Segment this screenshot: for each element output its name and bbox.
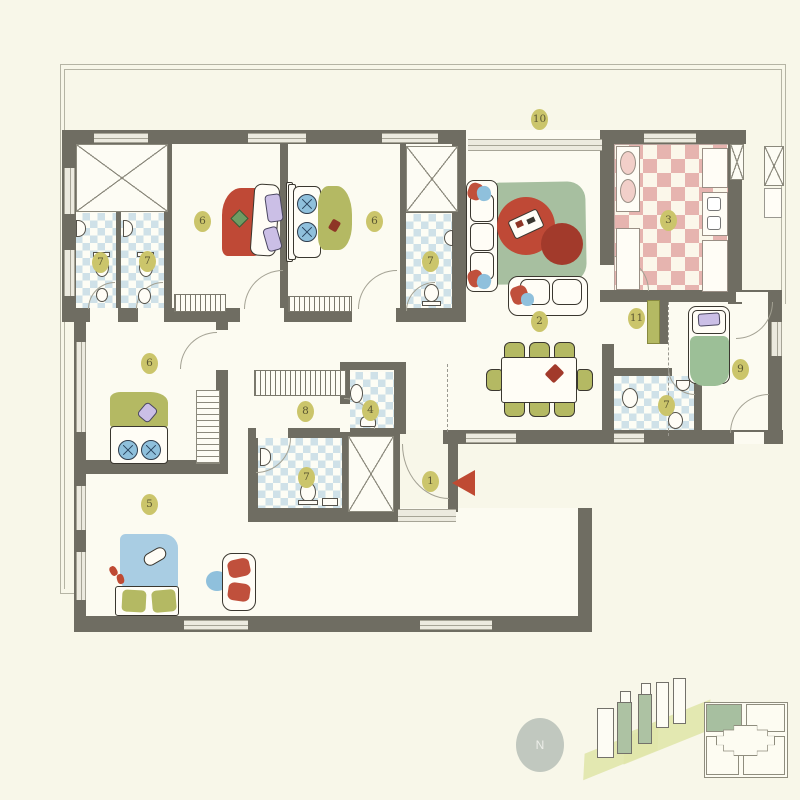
room-label-bathroom: 7 bbox=[422, 251, 439, 272]
pillow-round-blue bbox=[297, 194, 317, 214]
wardrobe bbox=[254, 370, 346, 396]
window bbox=[382, 133, 438, 143]
wardrobe bbox=[196, 390, 220, 464]
radiator bbox=[174, 294, 226, 312]
room-label-bathroom: 4 bbox=[362, 400, 379, 421]
room-label-kitchen: 3 bbox=[660, 210, 677, 231]
dining-table bbox=[501, 357, 577, 403]
window bbox=[248, 133, 306, 143]
entrance-arrow bbox=[452, 470, 475, 496]
room-label-bathroom: 7 bbox=[298, 467, 315, 488]
window bbox=[64, 168, 75, 214]
sofa-cushion bbox=[470, 223, 494, 251]
site-tower-cap bbox=[620, 691, 631, 703]
wall bbox=[602, 290, 614, 302]
pillow-olive bbox=[121, 589, 146, 612]
kitchen-basin bbox=[620, 179, 636, 203]
room-label-bedroom: 6 bbox=[194, 211, 211, 232]
room-label-bedroom: 6 bbox=[366, 211, 383, 232]
room-label-bathroom: 7 bbox=[139, 251, 156, 272]
door-opening bbox=[90, 308, 118, 322]
armchair-cushion-red bbox=[227, 582, 251, 603]
pillow-round-blue bbox=[297, 222, 317, 242]
single-bed-blanket-green bbox=[690, 336, 729, 386]
radiator bbox=[288, 296, 352, 312]
kitchen-fridge bbox=[702, 148, 728, 188]
key-plan-core bbox=[716, 725, 775, 756]
wall bbox=[394, 362, 406, 434]
closet-shaft bbox=[76, 144, 168, 212]
bed-blanket-olive bbox=[318, 186, 352, 250]
site-tower-highlighted bbox=[617, 702, 632, 754]
shaft bbox=[730, 144, 744, 180]
stove-burner bbox=[707, 216, 721, 230]
toilet bbox=[424, 284, 439, 302]
pillow-purple bbox=[698, 312, 721, 327]
site-tower bbox=[673, 678, 686, 724]
dining-chair bbox=[577, 369, 593, 391]
door-opening bbox=[734, 432, 764, 444]
terrace-line-top-inner bbox=[64, 69, 782, 70]
wall bbox=[116, 211, 121, 310]
window bbox=[614, 433, 644, 443]
loveseat-cushion bbox=[552, 279, 582, 305]
room-label-bedroom: 9 bbox=[732, 359, 749, 380]
kitchen-basin bbox=[620, 151, 636, 175]
stove-burner bbox=[707, 197, 721, 211]
shaft bbox=[348, 436, 394, 512]
north-compass: N bbox=[516, 718, 564, 772]
pillow-round-blue bbox=[118, 440, 138, 460]
window bbox=[94, 133, 148, 143]
room-label-entrance: 1 bbox=[422, 471, 439, 492]
sliding-track bbox=[447, 364, 448, 432]
compass-letter: N bbox=[536, 738, 545, 752]
window bbox=[771, 322, 782, 356]
door-opening bbox=[240, 308, 284, 322]
site-tower-cap bbox=[641, 683, 651, 695]
kitchen-cabinet bbox=[616, 228, 640, 290]
room-label-hallway: 11 bbox=[628, 308, 645, 329]
loveseat-pillow-blue bbox=[521, 293, 534, 306]
window bbox=[420, 620, 492, 630]
key-plan-core-inner bbox=[717, 726, 774, 755]
room-label-bathroom: 7 bbox=[92, 252, 109, 273]
window bbox=[76, 342, 86, 432]
room-label-bedroom: 6 bbox=[141, 353, 158, 374]
room-label-bathroom: 7 bbox=[658, 395, 675, 416]
door-opening bbox=[352, 308, 396, 322]
site-tower-highlighted bbox=[638, 694, 652, 744]
bidet bbox=[138, 288, 151, 304]
shaft bbox=[406, 146, 458, 212]
pillow-olive bbox=[151, 589, 177, 613]
room-label-corridor: 8 bbox=[297, 401, 314, 422]
key-plan bbox=[704, 702, 788, 778]
wall-basin bbox=[444, 230, 453, 246]
floorplan-canvas: 1234566677777891011 N bbox=[0, 0, 800, 800]
door-opening bbox=[736, 292, 768, 302]
window bbox=[76, 552, 86, 600]
kitchen-cabinet bbox=[702, 240, 728, 292]
room-label-bedroom: 5 bbox=[141, 494, 158, 515]
wall bbox=[74, 616, 592, 632]
terrace-line-right-outer bbox=[785, 64, 786, 304]
window bbox=[466, 433, 516, 443]
wall bbox=[578, 508, 592, 630]
window bbox=[76, 486, 86, 530]
window bbox=[184, 620, 248, 630]
toilet-tank bbox=[422, 301, 441, 306]
entry-landing bbox=[398, 509, 456, 522]
floor-drain bbox=[96, 288, 108, 302]
sliding-door-living bbox=[468, 139, 602, 151]
terrace-line-top-outer bbox=[60, 64, 786, 65]
room-label-living-dining: 2 bbox=[531, 311, 548, 332]
wall bbox=[602, 344, 614, 438]
dining-chair bbox=[486, 369, 502, 391]
pedestal-basin bbox=[350, 384, 363, 403]
site-diagram bbox=[575, 668, 705, 778]
toilet-tank bbox=[298, 500, 318, 505]
coffee-table-round-small bbox=[541, 223, 583, 265]
wall bbox=[600, 133, 614, 265]
site-tower bbox=[597, 708, 614, 758]
shaft bbox=[764, 146, 784, 186]
hall-cabinet-olive bbox=[647, 300, 660, 344]
terrace-line-left-outer bbox=[60, 64, 61, 594]
room-label-terrace: 10 bbox=[531, 109, 548, 130]
pedestal-basin bbox=[622, 388, 638, 408]
pillow-round-blue bbox=[141, 440, 161, 460]
door-opening bbox=[138, 308, 164, 322]
site-tower bbox=[656, 682, 669, 728]
window bbox=[644, 133, 696, 143]
utility-box bbox=[764, 188, 782, 218]
door-opening bbox=[216, 330, 228, 370]
bath-shelf bbox=[322, 498, 338, 506]
door-opening bbox=[256, 428, 288, 438]
window bbox=[64, 250, 75, 296]
